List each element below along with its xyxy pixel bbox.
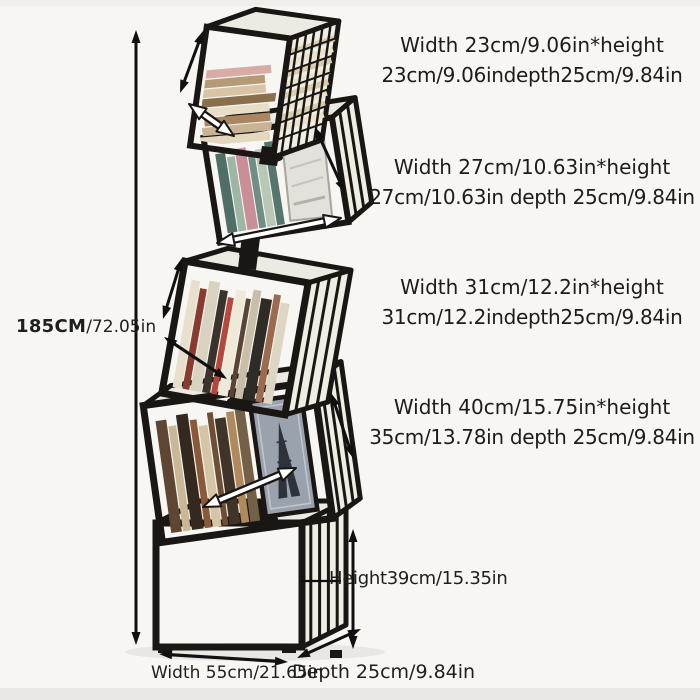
product-dimension-image: Width 23cm/9.06in*height 23cm/9.06indept…	[0, 0, 700, 700]
tier3-dimensions-line2: 31cm/12.2indepth25cm/9.84in	[364, 302, 700, 332]
tier3-dimensions-line1: Width 31cm/12.2in*height	[364, 272, 700, 302]
total-height-label: 185CM/72.05in	[16, 316, 156, 337]
base-height-label: Height39cm/15.35in	[329, 568, 507, 589]
tier1-dimensions-line1: Width 23cm/9.06in*height	[364, 30, 700, 60]
total-height-inches: /72.05in	[86, 317, 156, 337]
tier4-dimensions-line2: 35cm/13.78in depth 25cm/9.84in	[364, 422, 700, 452]
tier4-dimensions-line1: Width 40cm/15.75in*height	[364, 392, 700, 422]
total-height-cm: 185CM	[16, 316, 86, 337]
tier4-dimensions-label: Width 40cm/15.75in*height 35cm/13.78in d…	[364, 392, 700, 452]
tier2-dimensions-line1: Width 27cm/10.63in*height	[364, 152, 700, 182]
base-depth-label: Depth 25cm/9.84in	[292, 661, 475, 683]
tier3-dimensions-label: Width 31cm/12.2in*height 31cm/12.2indept…	[364, 272, 700, 332]
tier1-dimensions-line2: 23cm/9.06indepth25cm/9.84in	[364, 60, 700, 90]
tier1-dimensions-label: Width 23cm/9.06in*height 23cm/9.06indept…	[364, 30, 700, 90]
bookshelf-illustration	[0, 0, 700, 700]
tier2-dimensions-line2: 27cm/10.63in depth 25cm/9.84in	[364, 182, 700, 212]
tier2-dimensions-label: Width 27cm/10.63in*height 27cm/10.63in d…	[364, 152, 700, 212]
